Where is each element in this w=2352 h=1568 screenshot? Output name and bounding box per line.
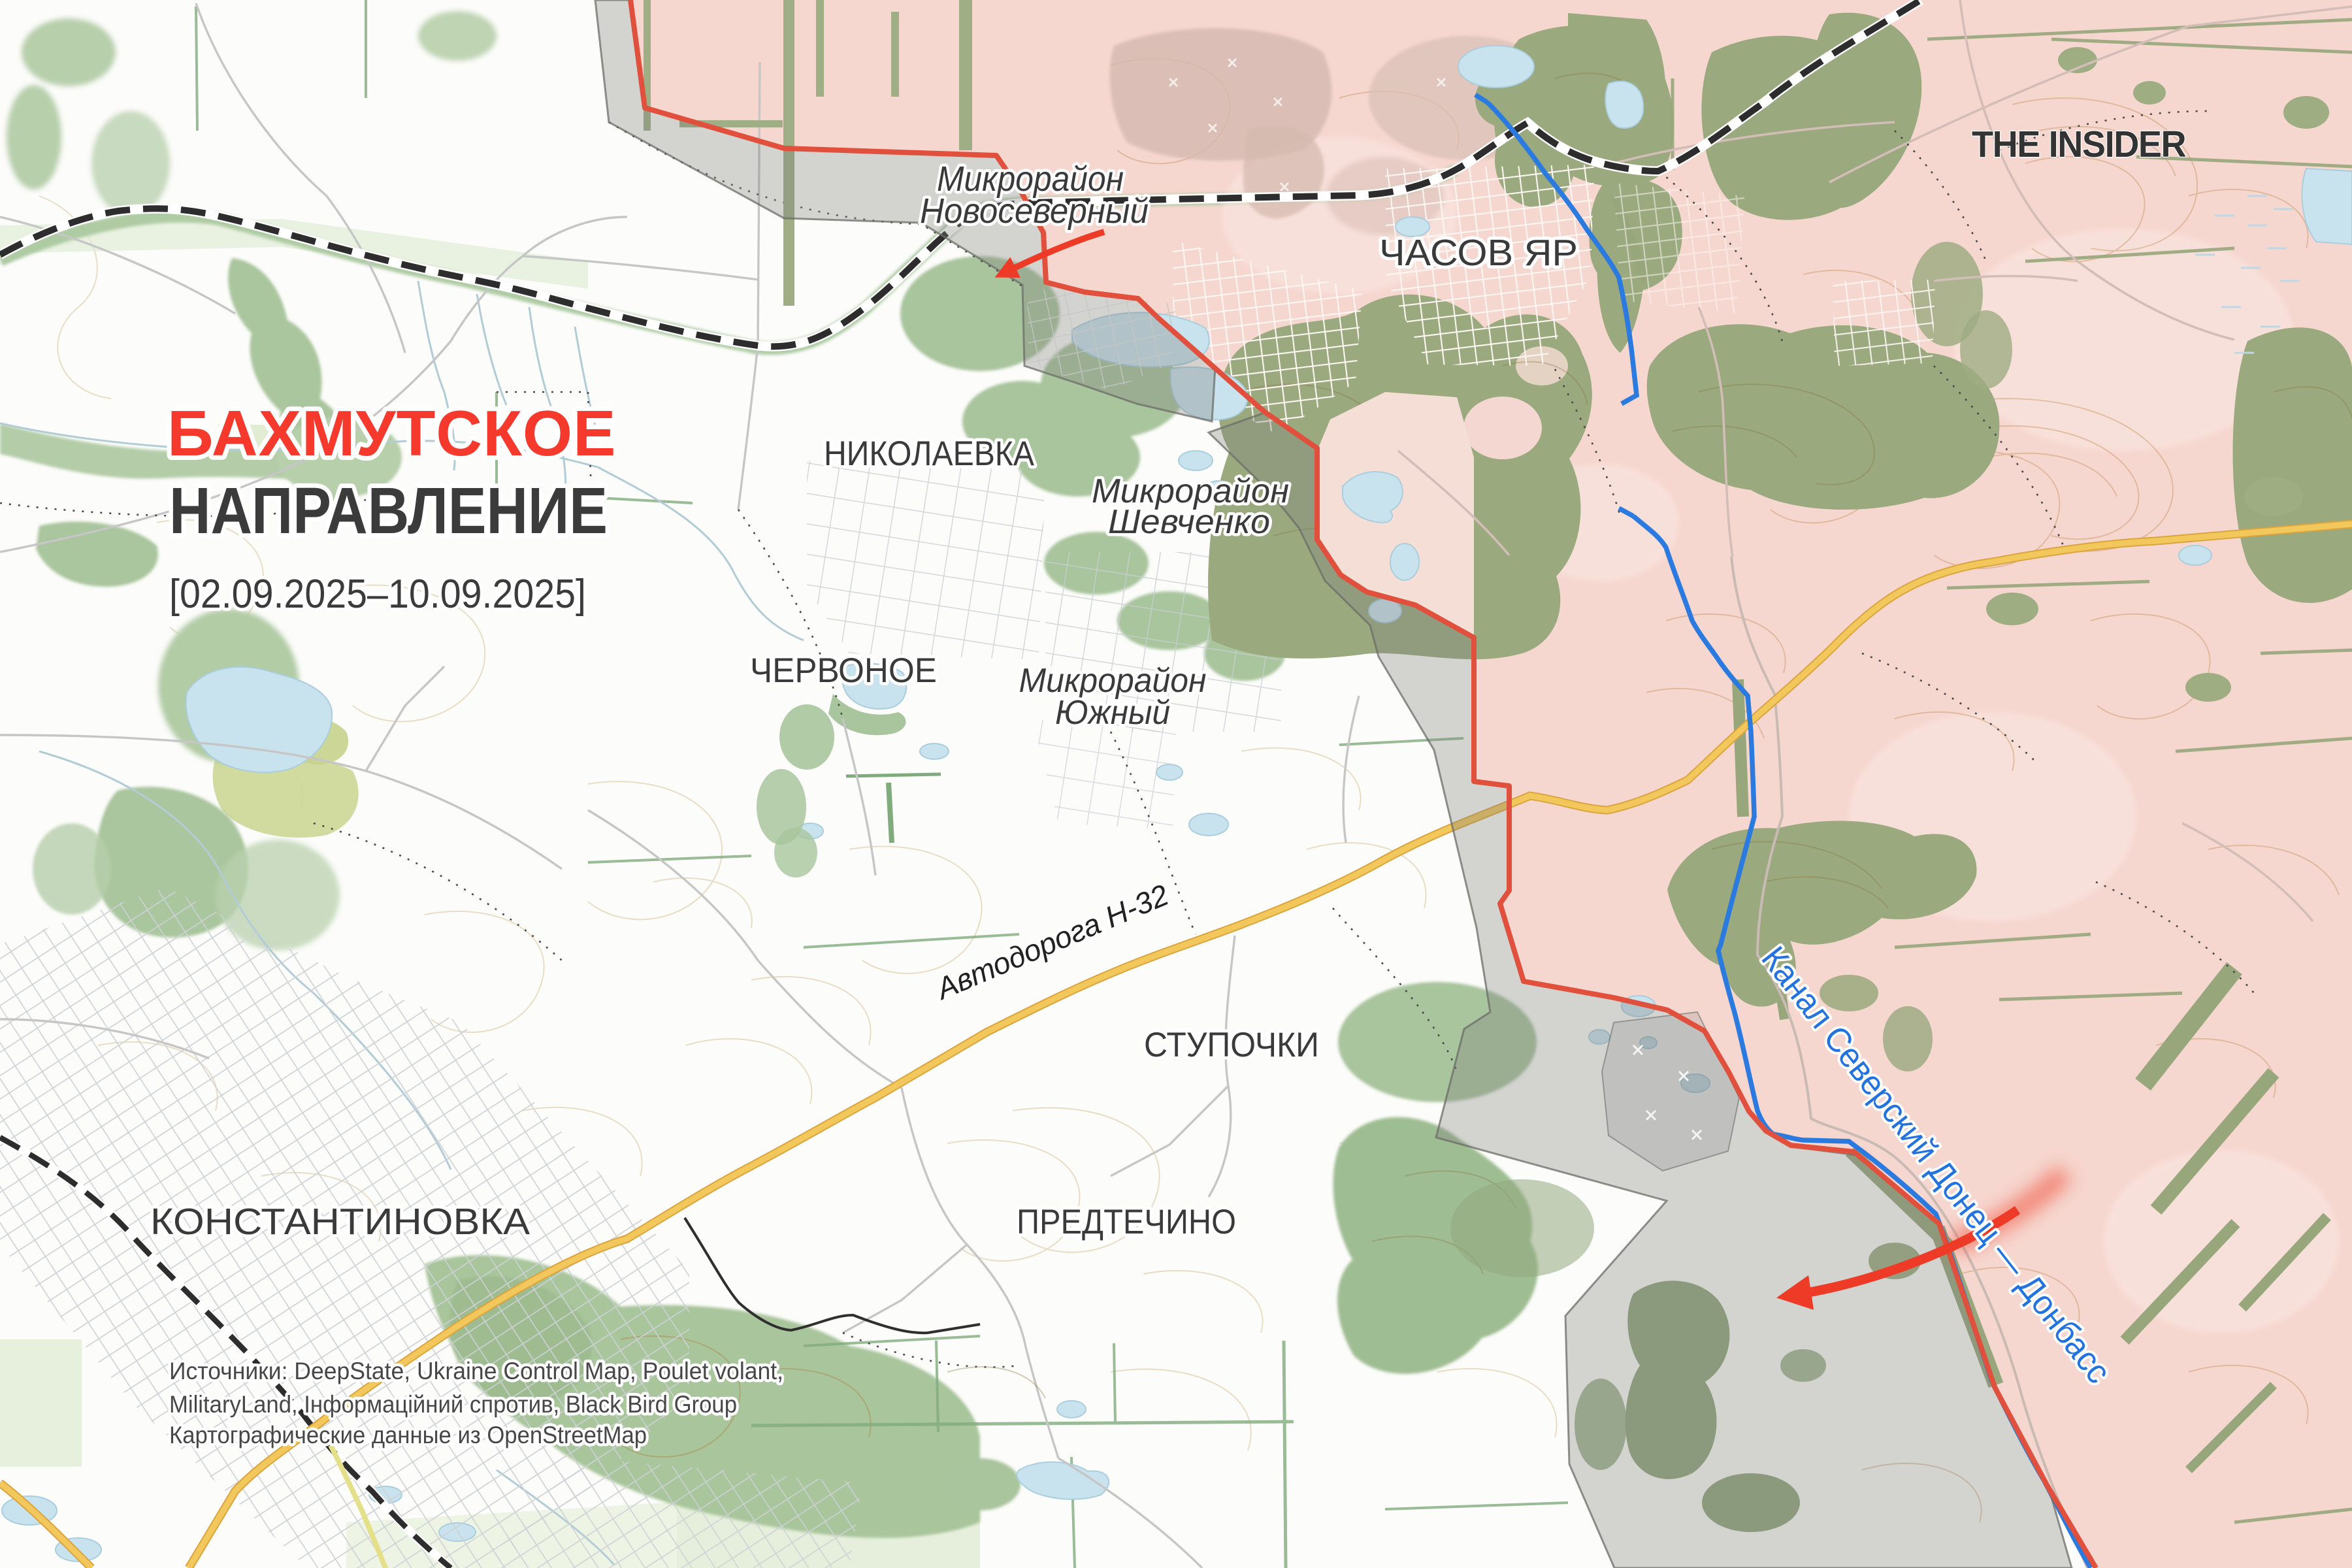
svg-text:Южный: Южный <box>1055 694 1170 732</box>
svg-text:Шевченко: Шевченко <box>1108 503 1270 541</box>
svg-text:СТУПОЧКИ: СТУПОЧКИ <box>1144 1026 1319 1064</box>
svg-text:THE INSIDER: THE INSIDER <box>1972 123 2186 165</box>
svg-text:Источники: DeepState, Ukraine: Источники: DeepState, Ukraine Control Ma… <box>169 1358 783 1384</box>
svg-text:Картографические данные из Ope: Картографические данные из OpenStreetMap <box>169 1422 647 1448</box>
svg-text:[02.09.2025–10.09.2025]: [02.09.2025–10.09.2025] <box>169 572 586 617</box>
svg-text:Новосеверный: Новосеверный <box>920 191 1149 231</box>
svg-text:НАПРАВЛЕНИЕ: НАПРАВЛЕНИЕ <box>169 474 608 547</box>
svg-text:ПРЕДТЕЧИНО: ПРЕДТЕЧИНО <box>1017 1203 1236 1241</box>
svg-text:MilitaryLand, Інформаційний сп: MilitaryLand, Інформаційний спротив, Bla… <box>169 1391 737 1418</box>
svg-text:КОНСТАНТИНОВКА: КОНСТАНТИНОВКА <box>150 1201 530 1243</box>
svg-text:БАХМУТСКОЕ: БАХМУТСКОЕ <box>167 397 616 469</box>
svg-text:ЧЕРВОНОЕ: ЧЕРВОНОЕ <box>750 651 937 690</box>
svg-text:НИКОЛАЕВКА: НИКОЛАЕВКА <box>824 434 1035 473</box>
svg-text:ЧАСОВ ЯР: ЧАСОВ ЯР <box>1379 232 1578 274</box>
